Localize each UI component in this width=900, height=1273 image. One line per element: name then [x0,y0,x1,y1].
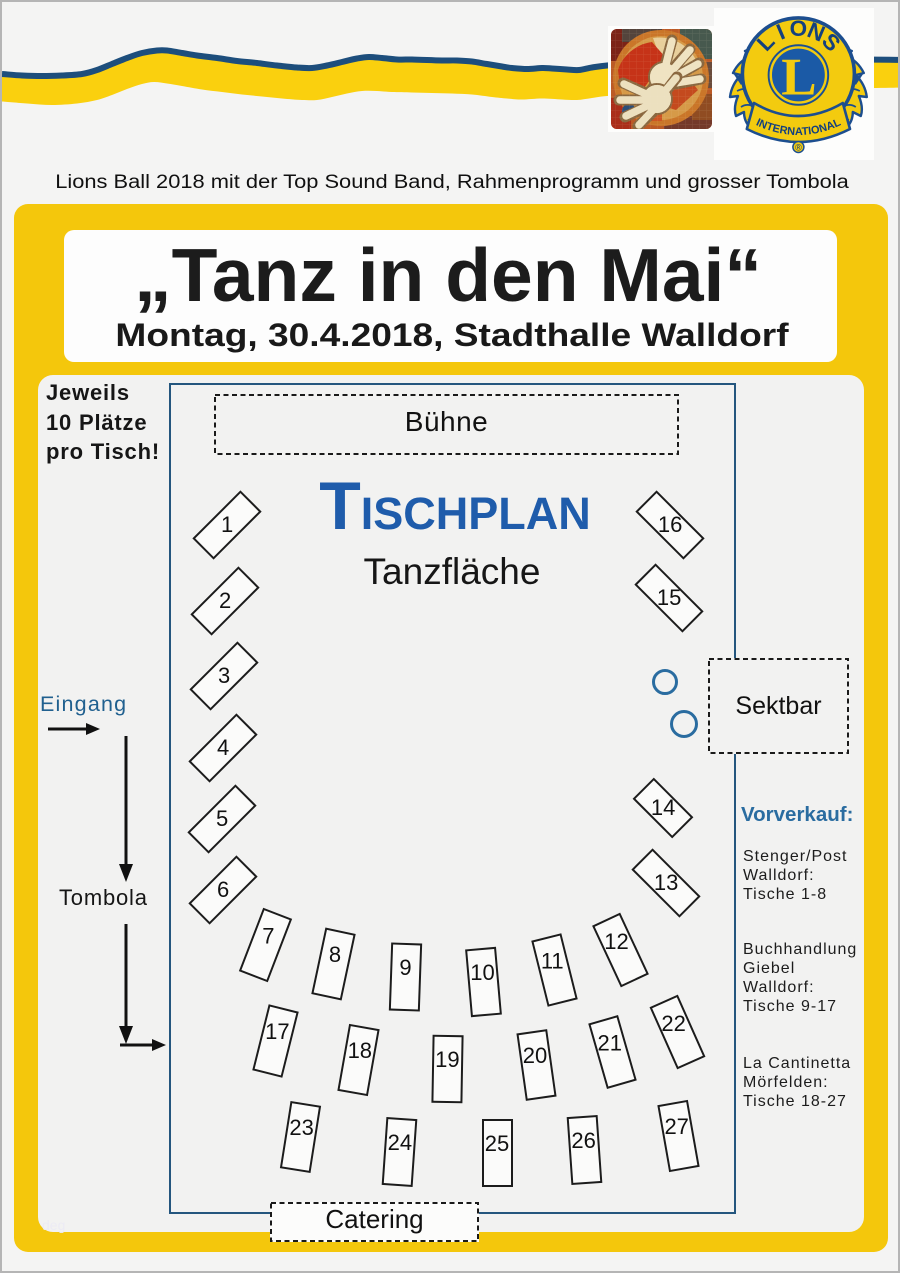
svg-text:®: ® [795,143,802,153]
svg-text:L: L [781,49,816,107]
